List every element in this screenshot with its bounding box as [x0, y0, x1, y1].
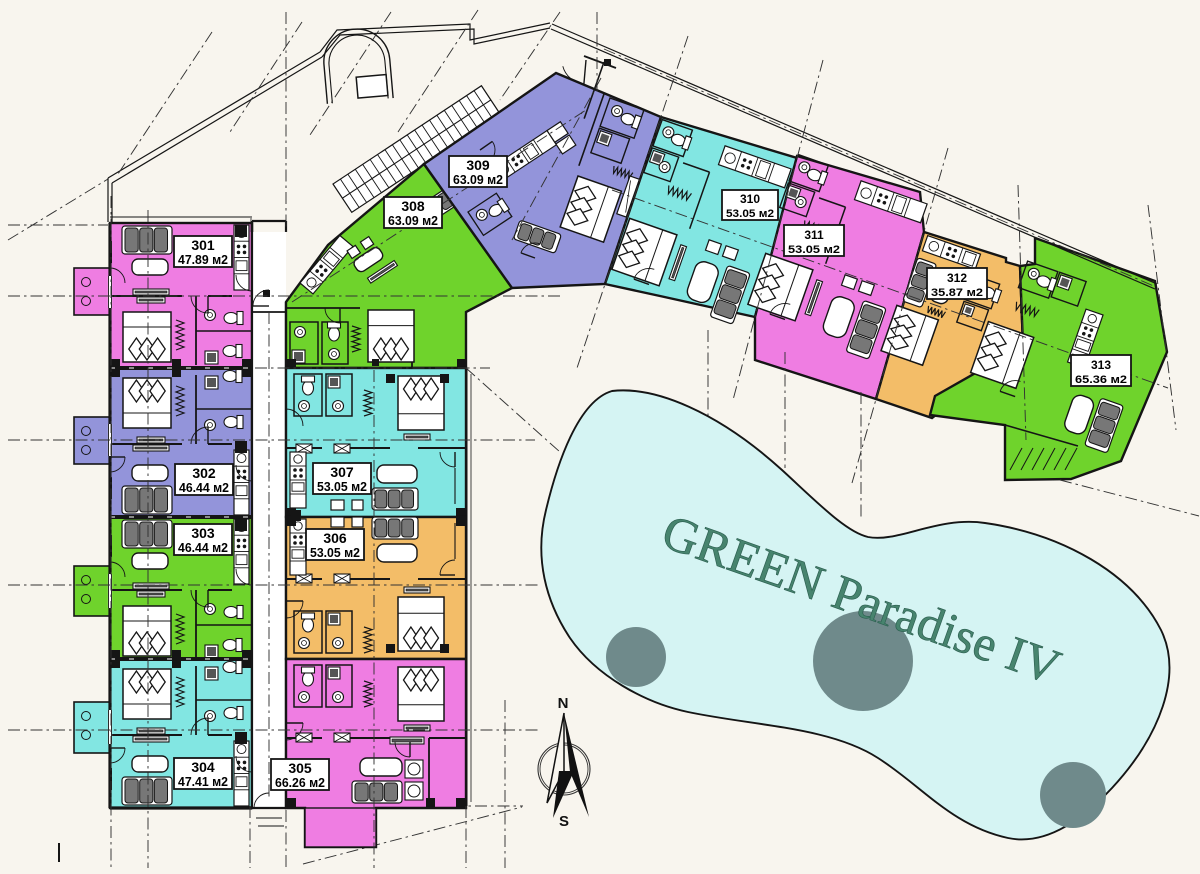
svg-text:313: 313 [1091, 358, 1111, 372]
svg-text:46.44 м2: 46.44 м2 [179, 481, 229, 495]
svg-text:46.44 м2: 46.44 м2 [178, 541, 228, 555]
svg-text:309: 309 [466, 157, 490, 173]
svg-text:312: 312 [947, 271, 967, 285]
svg-text:53.05 м2: 53.05 м2 [310, 546, 360, 560]
svg-text:302: 302 [192, 465, 216, 481]
svg-text:304: 304 [191, 759, 215, 775]
svg-text:47.89 м2: 47.89 м2 [178, 253, 228, 267]
svg-text:63.09 м2: 63.09 м2 [388, 214, 438, 228]
svg-text:301: 301 [191, 237, 215, 253]
svg-text:305: 305 [288, 760, 312, 776]
svg-text:S: S [559, 813, 569, 830]
svg-text:310: 310 [740, 192, 760, 206]
svg-text:47.41 м2: 47.41 м2 [178, 775, 228, 789]
svg-text:311: 311 [804, 228, 824, 242]
svg-text:303: 303 [191, 525, 215, 541]
svg-text:65.36 м2: 65.36 м2 [1075, 374, 1127, 386]
svg-text:306: 306 [323, 530, 347, 546]
svg-text:53.05 м2: 53.05 м2 [726, 208, 774, 220]
svg-text:N: N [558, 695, 569, 712]
svg-text:307: 307 [330, 464, 354, 480]
svg-text:53.05 м2: 53.05 м2 [788, 244, 840, 256]
svg-text:35.87 м2: 35.87 м2 [931, 287, 983, 299]
svg-text:63.09 м2: 63.09 м2 [453, 173, 503, 187]
svg-text:308: 308 [401, 198, 425, 214]
svg-text:53.05 м2: 53.05 м2 [317, 480, 367, 494]
svg-text:66.26 м2: 66.26 м2 [275, 776, 325, 790]
